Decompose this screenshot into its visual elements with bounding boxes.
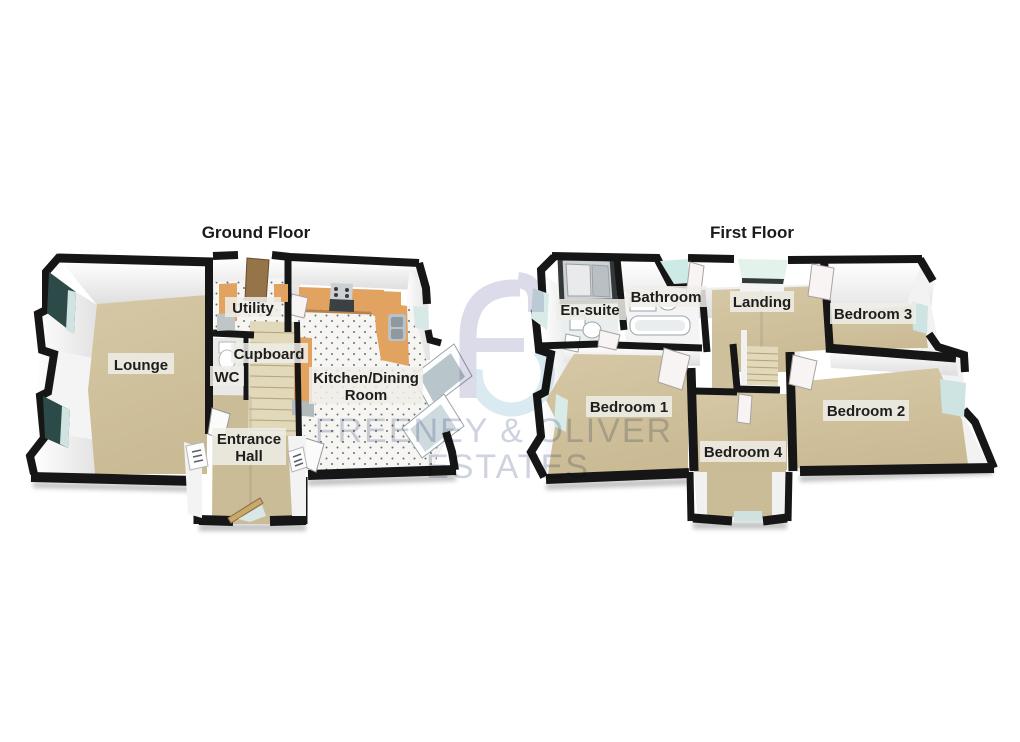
svg-text:Room: Room — [345, 387, 388, 404]
svg-text:Ground Floor: Ground Floor — [202, 223, 311, 242]
svg-text:Bedroom 2: Bedroom 2 — [827, 403, 905, 420]
svg-text:FREENEY & OLIVER: FREENEY & OLIVER — [315, 412, 673, 450]
svg-text:Bathroom: Bathroom — [631, 289, 702, 306]
svg-text:Cupboard: Cupboard — [234, 346, 305, 363]
svg-text:Lounge: Lounge — [114, 357, 168, 374]
svg-text:First Floor: First Floor — [710, 223, 794, 242]
svg-text:WC: WC — [215, 369, 240, 386]
svg-text:Bedroom 3: Bedroom 3 — [834, 306, 912, 323]
svg-text:Hall: Hall — [235, 448, 263, 465]
svg-text:En-suite: En-suite — [560, 302, 619, 319]
svg-text:ESTATES: ESTATES — [426, 448, 590, 486]
svg-text:Bedroom 4: Bedroom 4 — [704, 444, 783, 461]
svg-text:Landing: Landing — [733, 294, 791, 311]
svg-text:Utility: Utility — [232, 300, 274, 317]
svg-text:Entrance: Entrance — [217, 431, 281, 448]
svg-text:Kitchen/Dining: Kitchen/Dining — [313, 370, 419, 387]
